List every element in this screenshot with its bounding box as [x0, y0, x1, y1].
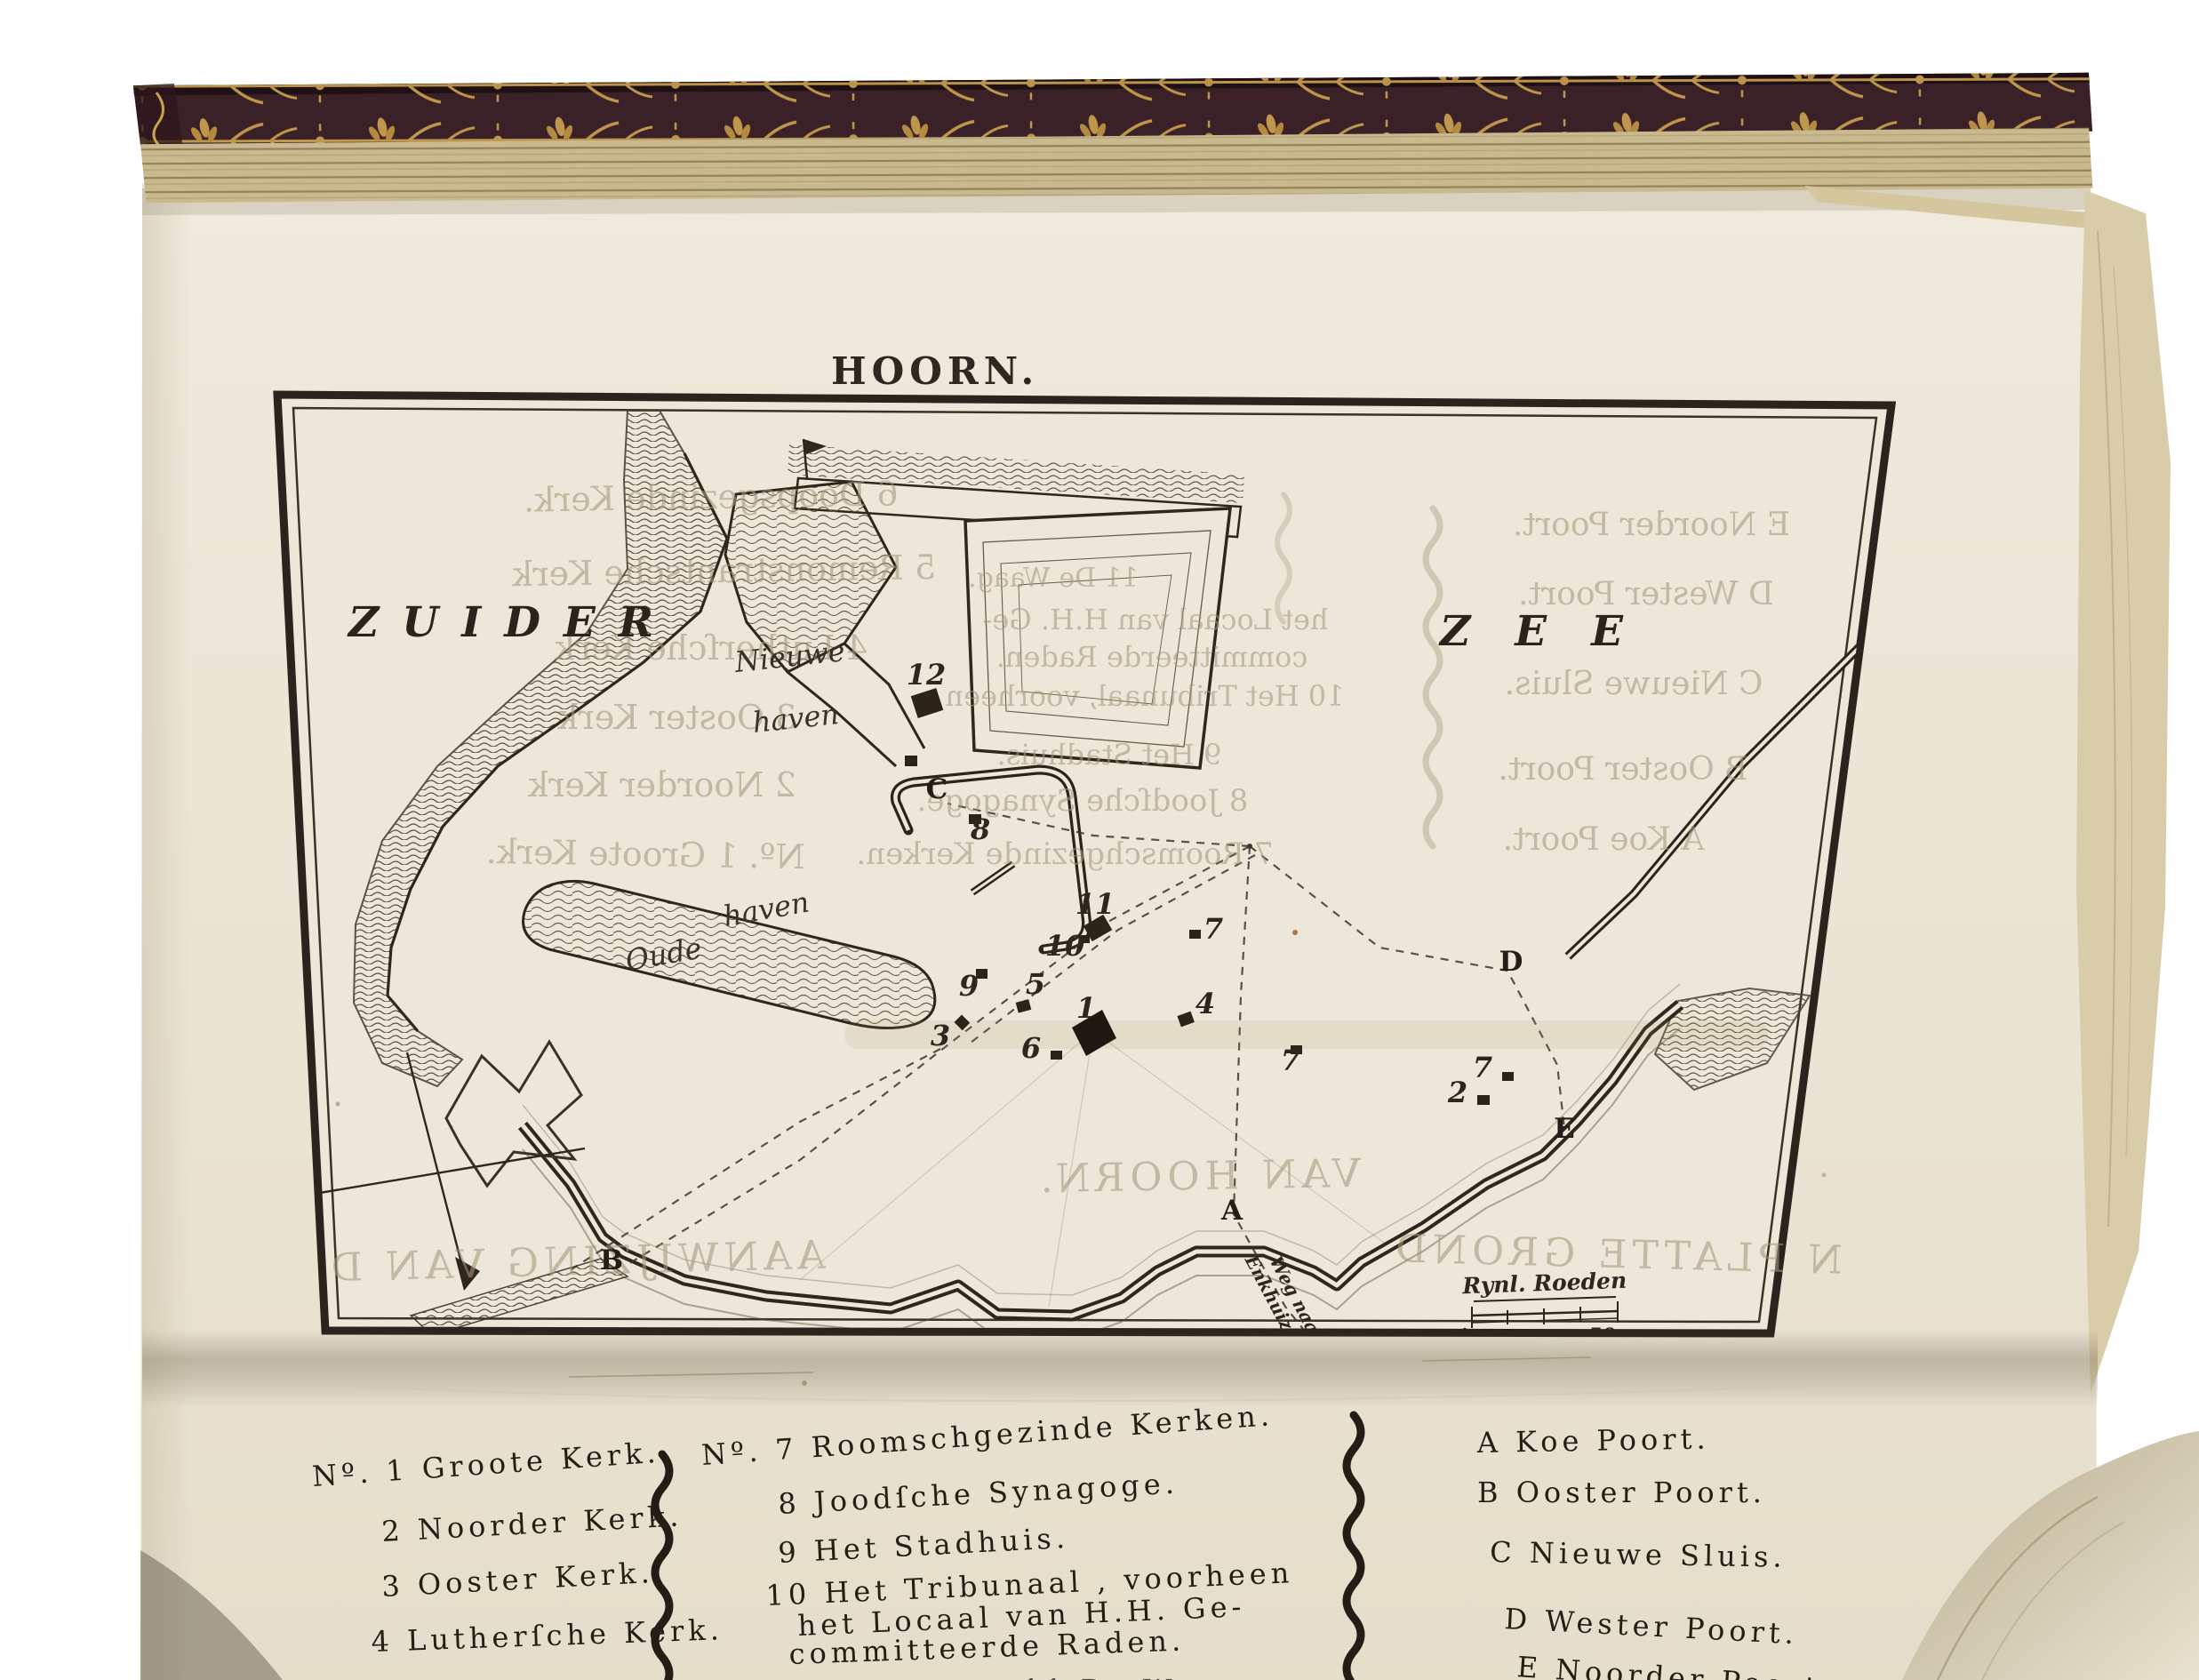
- bleed-left-0: 6 Doopsgezinde Kerk.: [524, 474, 900, 519]
- book-photo: HOORN.: [0, 0, 2199, 1680]
- marker-A: A: [1220, 1195, 1243, 1227]
- sea-label-right: ZEE: [1438, 607, 1667, 656]
- marker-5: 5: [1026, 967, 1045, 1001]
- bleed-center-3: 10 Het Tribunaal, voorheen: [945, 679, 1344, 713]
- legend-col3-item-1: B Ooster Poort.: [1477, 1476, 1766, 1509]
- marker-7a: 7: [1203, 912, 1223, 946]
- marker-7c: 7: [1473, 1051, 1492, 1084]
- legend-col3-item-0: A Koe Poort.: [1475, 1421, 1709, 1460]
- legend-col3-item-2: C Nieuwe Sluis.: [1490, 1535, 1787, 1574]
- bleed-center-4: 9 Het Stadhuis.: [997, 738, 1222, 772]
- marker-12: 12: [907, 658, 947, 692]
- marker-E: E: [1554, 1113, 1575, 1145]
- plate-title: HOORN.: [831, 349, 1039, 393]
- bleed-right-4: A Koe Poort.: [1502, 821, 1705, 858]
- marker-7b: 7: [1281, 1044, 1300, 1077]
- bleed-right-0: E Noorder Poort.: [1513, 507, 1790, 543]
- marker-9: 9: [959, 969, 979, 1003]
- marker-D: D: [1499, 946, 1523, 978]
- bleed-center-2: committeerde Raden.: [996, 640, 1308, 674]
- map-plate: HOORN.: [256, 349, 1891, 1356]
- bleed-left-4: 2 Noorder Kerk: [527, 765, 796, 804]
- marker-B: B: [600, 1244, 623, 1276]
- sea-label-left: ZUIDER: [347, 598, 676, 647]
- fore-edge-right: [2076, 190, 2171, 1394]
- bleed-center-6: 7 Roomschgezinde Kerken.: [856, 836, 1273, 872]
- bleed-center-5: 8 Joodſche Synagoge.: [917, 783, 1249, 819]
- marker-11: 11: [1076, 887, 1115, 921]
- marker-8: 8: [970, 812, 990, 846]
- marker-C: C: [926, 773, 948, 805]
- bleed-bottom-1: VAN HOORN.: [1035, 1151, 1362, 1202]
- marker-3: 3: [931, 1019, 950, 1052]
- bleed-left-5: Nº. 1 Groote Kerk.: [485, 832, 804, 876]
- bleed-center-0: 11 De Waag.: [968, 563, 1139, 594]
- bleed-right-2: C Nieuwe Sluis.: [1505, 666, 1763, 702]
- marker-1: 1: [1076, 991, 1096, 1025]
- marker-6: 6: [1021, 1031, 1041, 1065]
- marker-4: 4: [1195, 987, 1215, 1020]
- page-crease: [142, 1330, 2098, 1408]
- marker-10: 10: [1045, 929, 1085, 963]
- legend-col2-partial: 11 De Waag.: [1022, 1673, 1253, 1680]
- bleed-left-1: 5 Remonstrantsche Kerk: [511, 548, 937, 594]
- bleed-right-3: B Ooster Poort.: [1498, 751, 1747, 788]
- harbour-works: [965, 508, 1230, 768]
- marker-2: 2: [1447, 1076, 1467, 1109]
